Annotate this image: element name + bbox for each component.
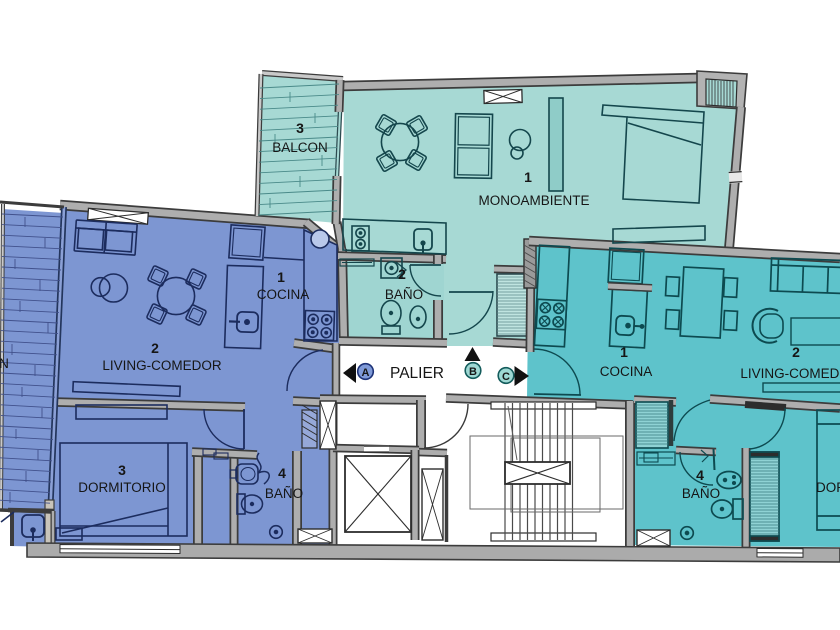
svg-text:LIVING-COMEDOR: LIVING-COMEDOR — [102, 358, 222, 373]
svg-text:LIVING-COMEDOR: LIVING-COMEDOR — [740, 366, 840, 381]
svg-text:A: A — [362, 367, 370, 379]
svg-text:COCINA: COCINA — [600, 364, 653, 379]
svg-text:N: N — [0, 356, 9, 371]
svg-text:4: 4 — [696, 467, 704, 483]
svg-text:3: 3 — [296, 120, 304, 136]
svg-text:PALIER: PALIER — [390, 365, 444, 382]
svg-text:BAÑO: BAÑO — [265, 486, 303, 501]
svg-text:1: 1 — [620, 344, 628, 360]
svg-text:3: 3 — [118, 462, 126, 478]
svg-text:1: 1 — [524, 169, 532, 185]
svg-text:2: 2 — [792, 344, 800, 360]
svg-text:DORMITORIO: DORMITORIO — [816, 480, 840, 495]
svg-text:B: B — [469, 366, 477, 378]
svg-text:DORMITORIO: DORMITORIO — [78, 480, 166, 495]
svg-text:2: 2 — [398, 266, 406, 282]
svg-text:BALCON: BALCON — [272, 140, 328, 155]
svg-text:4: 4 — [278, 465, 286, 481]
svg-text:COCINA: COCINA — [257, 287, 310, 302]
svg-text:BAÑO: BAÑO — [682, 486, 720, 501]
svg-text:2: 2 — [151, 340, 159, 356]
svg-text:1: 1 — [277, 269, 285, 285]
svg-text:BAÑO: BAÑO — [385, 287, 423, 302]
svg-text:MONOAMBIENTE: MONOAMBIENTE — [478, 193, 589, 208]
svg-text:C: C — [502, 371, 510, 383]
